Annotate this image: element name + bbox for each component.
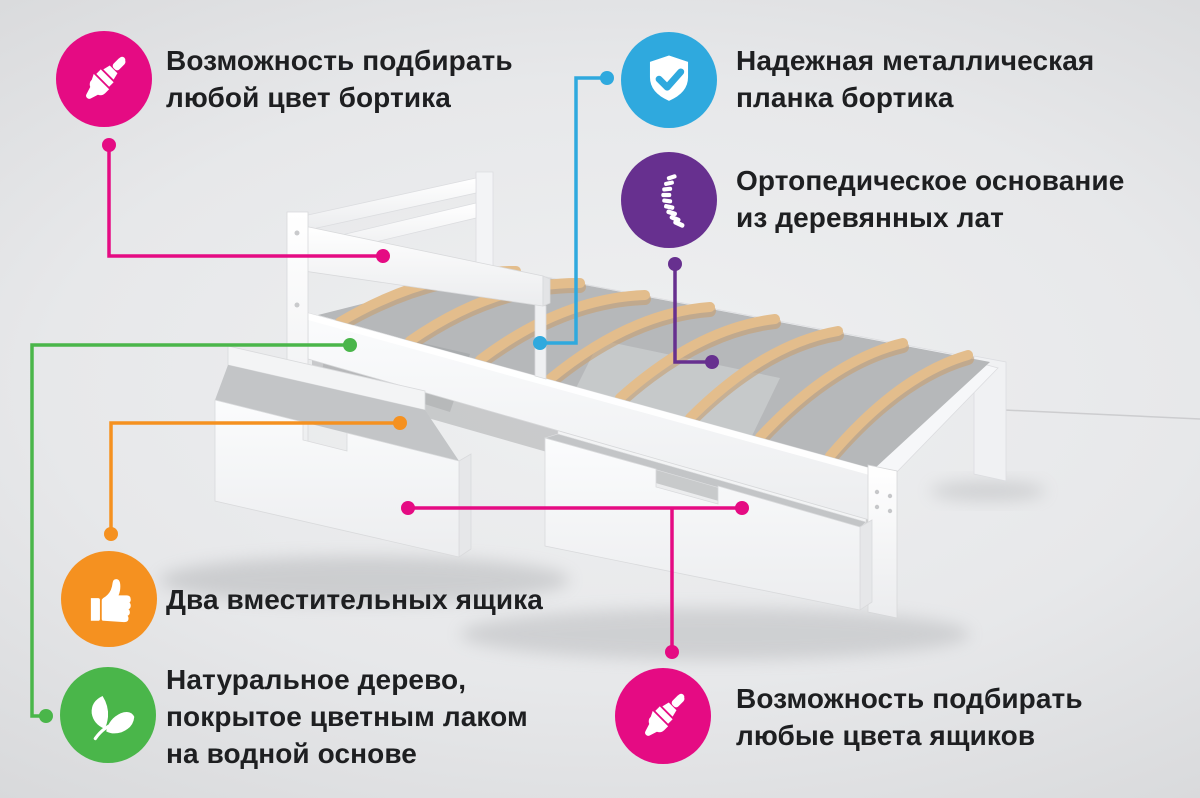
- feature-label: Ортопедическое основание из деревянных л…: [736, 162, 1124, 236]
- feature-label: Натуральное дерево, покрытое цветным лак…: [166, 661, 528, 772]
- shield-check-icon: [621, 32, 717, 128]
- feature-label: Возможность подбирать любые цвета ящиков: [736, 680, 1083, 754]
- feature-label: Два вместительных ящика: [166, 581, 543, 618]
- paintbrush-icon: [56, 31, 152, 127]
- feature-label: Возможность подбирать любой цвет бортика: [166, 42, 513, 116]
- infographic-canvas: Возможность подбирать любой цвет бортика…: [0, 0, 1200, 798]
- thumbs-up-icon: [61, 551, 157, 647]
- feature-label: Надежная металлическая планка бортика: [736, 42, 1094, 116]
- leaves-icon: [60, 667, 156, 763]
- paintbrush-icon: [615, 668, 711, 764]
- spine-icon: [621, 152, 717, 248]
